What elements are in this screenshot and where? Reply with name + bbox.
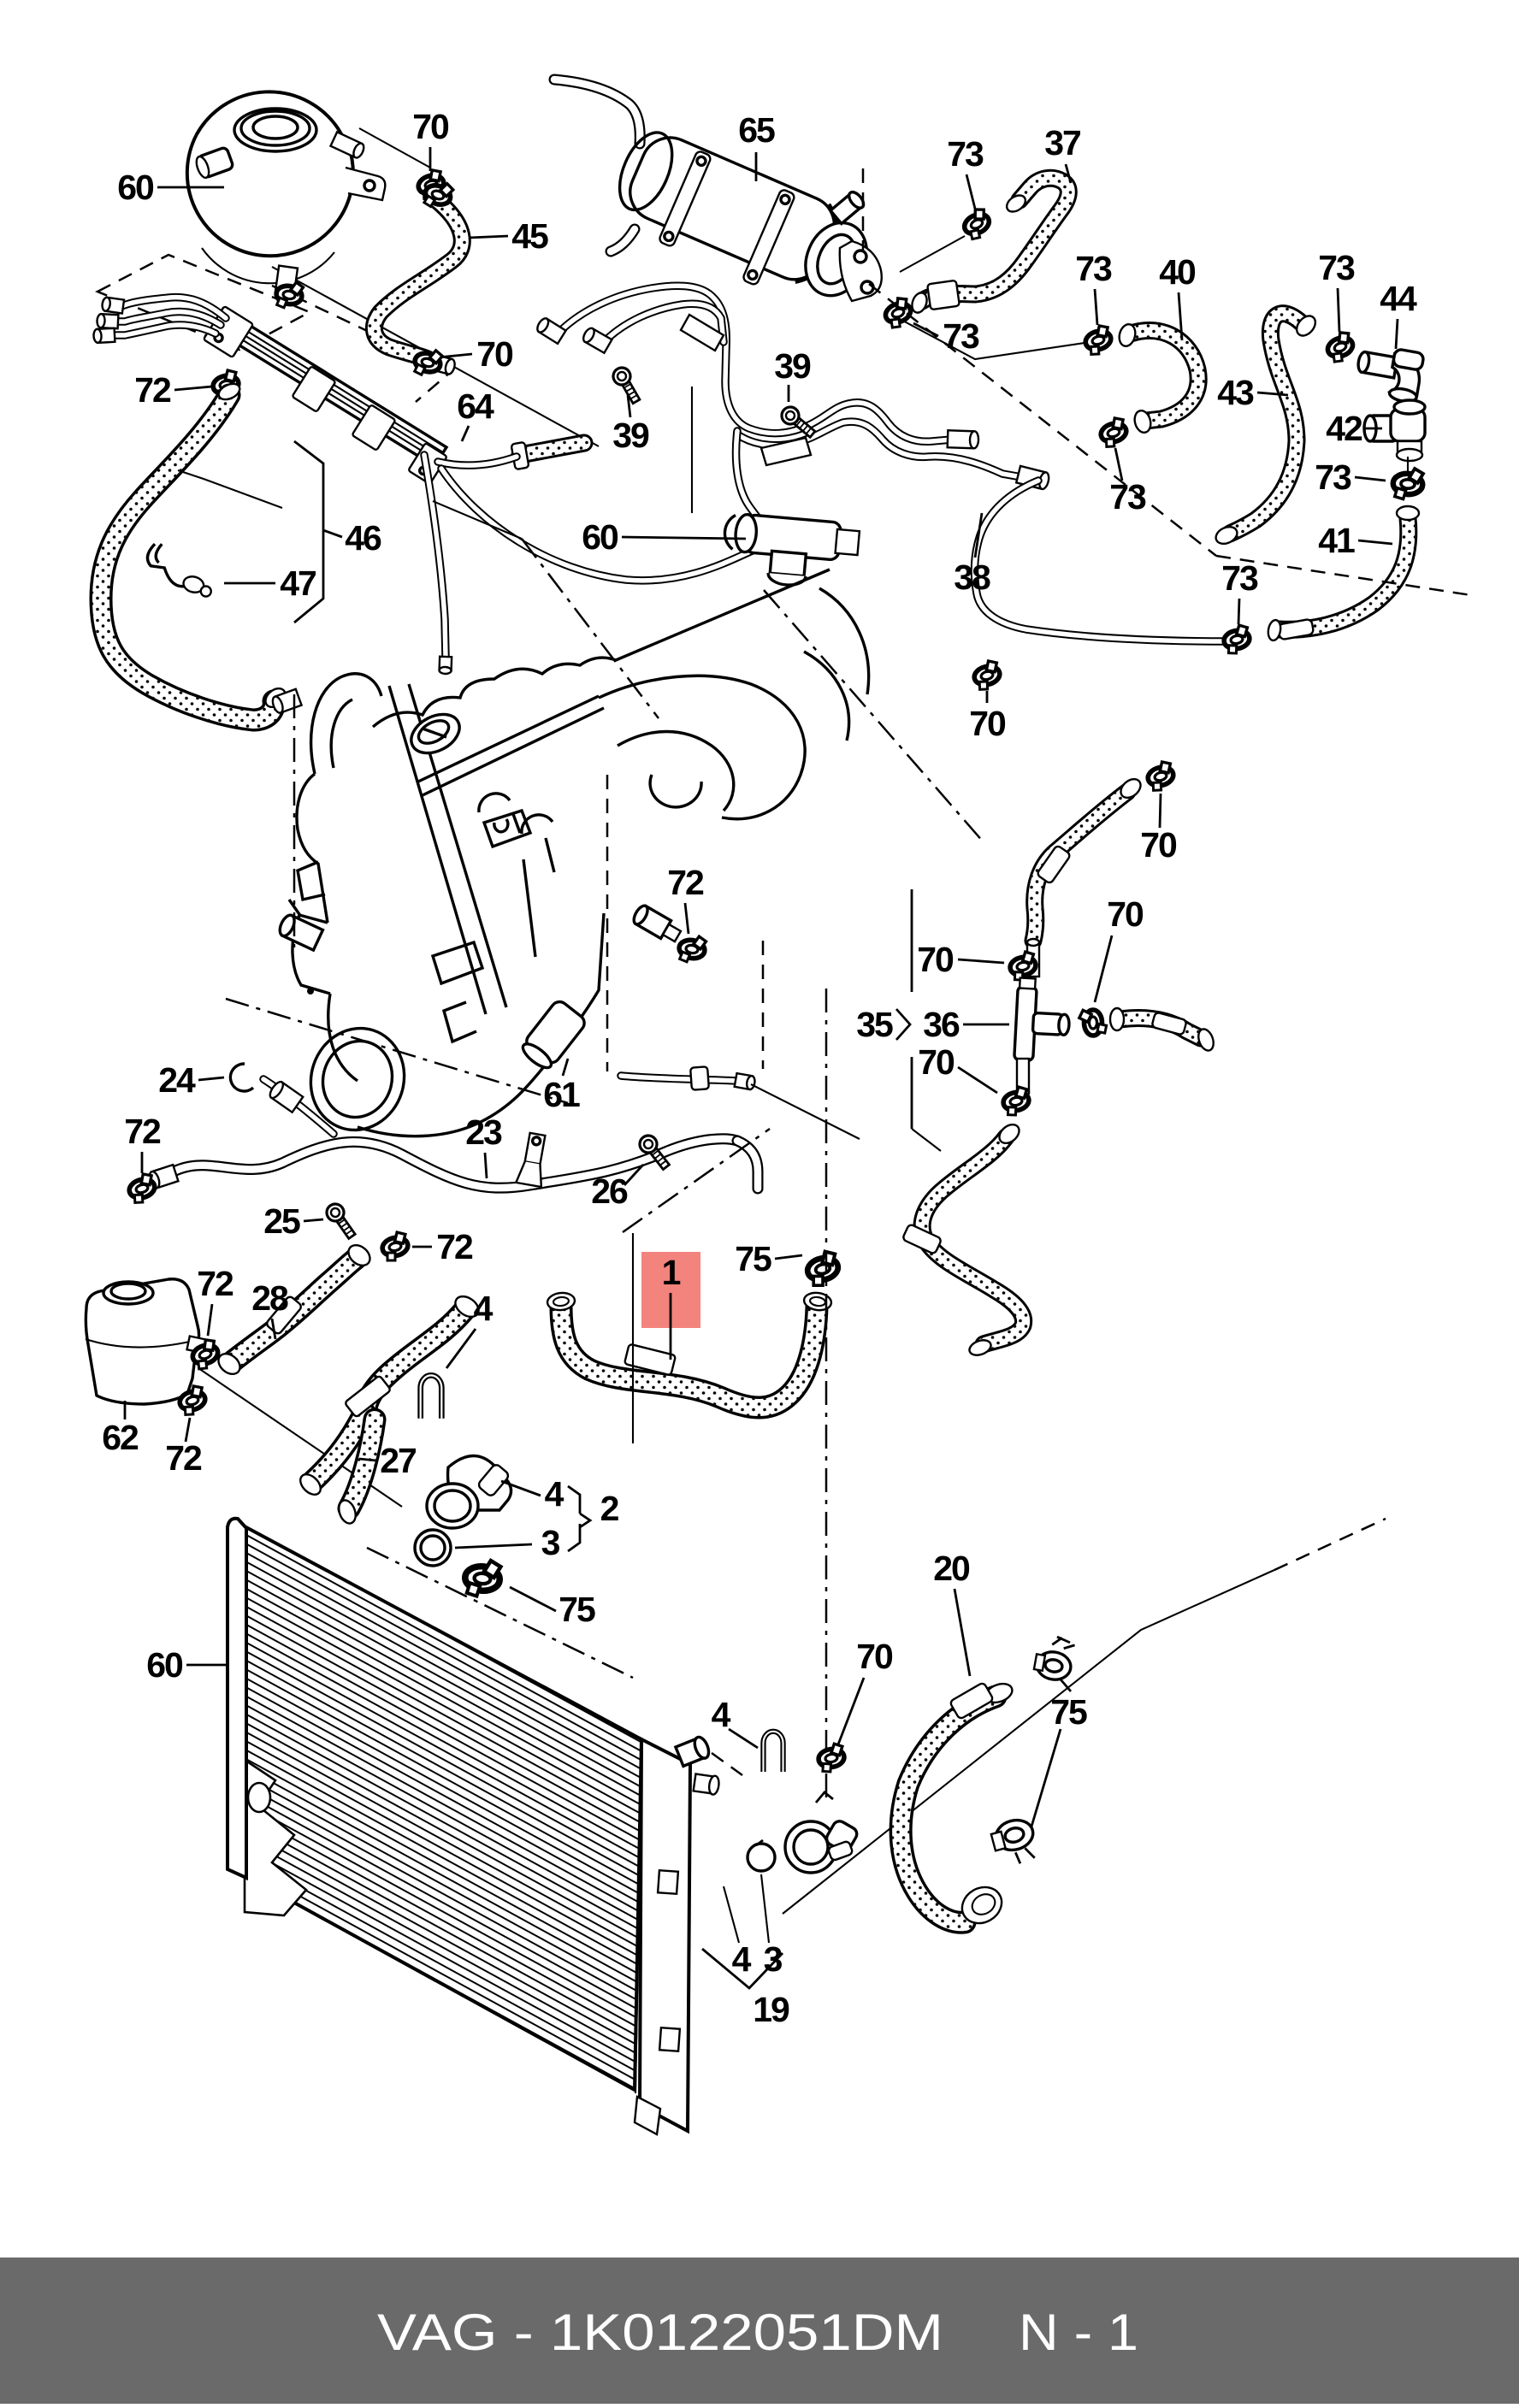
- svg-text:73: 73: [943, 316, 979, 356]
- svg-text:65: 65: [738, 110, 775, 150]
- svg-text:38: 38: [954, 558, 990, 597]
- svg-text:73: 73: [1315, 457, 1351, 497]
- svg-text:39: 39: [774, 346, 811, 386]
- svg-text:70: 70: [856, 1637, 893, 1676]
- svg-text:2: 2: [600, 1489, 619, 1528]
- svg-text:73: 73: [947, 134, 984, 174]
- svg-text:43: 43: [1217, 373, 1254, 412]
- svg-text:70: 70: [1140, 825, 1177, 865]
- svg-text:3: 3: [541, 1523, 560, 1562]
- svg-text:70: 70: [1107, 894, 1144, 934]
- svg-text:72: 72: [165, 1438, 202, 1478]
- svg-text:23: 23: [465, 1113, 502, 1152]
- svg-text:36: 36: [923, 1005, 960, 1044]
- svg-text:35: 35: [856, 1005, 893, 1044]
- svg-text:4: 4: [712, 1695, 731, 1734]
- svg-text:42: 42: [1326, 409, 1362, 448]
- svg-text:40: 40: [1159, 252, 1196, 292]
- svg-text:46: 46: [345, 518, 381, 558]
- svg-text:44: 44: [1380, 279, 1417, 318]
- svg-text:28: 28: [251, 1278, 288, 1318]
- svg-text:75: 75: [1050, 1692, 1087, 1732]
- svg-text:60: 60: [582, 517, 618, 557]
- svg-text:27: 27: [380, 1441, 416, 1480]
- svg-text:24: 24: [158, 1060, 196, 1100]
- svg-text:72: 72: [124, 1112, 161, 1151]
- svg-text:47: 47: [280, 564, 316, 603]
- svg-text:70: 70: [476, 334, 513, 374]
- svg-text:72: 72: [436, 1227, 473, 1266]
- svg-text:73: 73: [1075, 249, 1112, 288]
- svg-text:N - 1: N - 1: [1019, 2304, 1138, 2361]
- svg-text:25: 25: [263, 1201, 300, 1241]
- svg-text:62: 62: [102, 1418, 139, 1457]
- svg-text:72: 72: [667, 863, 704, 902]
- svg-text:26: 26: [591, 1172, 628, 1211]
- svg-text:70: 70: [917, 940, 954, 979]
- svg-text:4: 4: [545, 1474, 564, 1514]
- svg-text:1: 1: [662, 1253, 681, 1292]
- svg-text:20: 20: [933, 1549, 970, 1588]
- svg-text:72: 72: [134, 370, 171, 410]
- svg-text:60: 60: [146, 1645, 183, 1685]
- svg-text:64: 64: [457, 387, 494, 426]
- svg-text:61: 61: [543, 1075, 580, 1114]
- svg-text:4: 4: [732, 1939, 752, 1979]
- svg-text:70: 70: [412, 107, 449, 146]
- svg-text:3: 3: [764, 1939, 783, 1979]
- svg-text:73: 73: [1221, 558, 1258, 598]
- svg-text:75: 75: [559, 1590, 595, 1629]
- svg-text:72: 72: [197, 1264, 233, 1303]
- svg-text:VAG - 1K0122051DM: VAG - 1K0122051DM: [377, 2304, 943, 2361]
- svg-text:4: 4: [474, 1289, 494, 1328]
- svg-text:70: 70: [969, 704, 1006, 743]
- svg-text:75: 75: [735, 1239, 771, 1278]
- svg-text:73: 73: [1318, 248, 1355, 287]
- svg-text:70: 70: [918, 1042, 955, 1082]
- svg-text:60: 60: [117, 168, 154, 207]
- svg-text:45: 45: [511, 216, 548, 256]
- svg-text:19: 19: [753, 1990, 789, 2029]
- svg-text:37: 37: [1044, 123, 1080, 162]
- svg-text:41: 41: [1318, 521, 1355, 560]
- svg-text:39: 39: [612, 416, 649, 455]
